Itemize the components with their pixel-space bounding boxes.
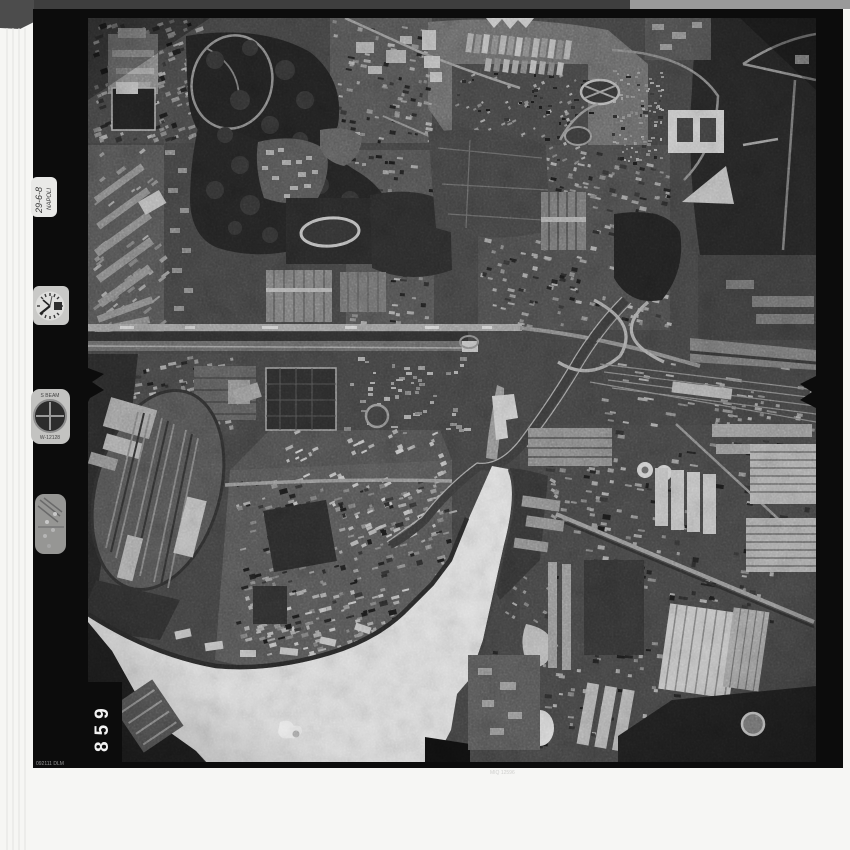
svg-text:092111 DLM: 092111 DLM [36, 761, 64, 767]
svg-text:S BEAM: S BEAM [41, 393, 60, 399]
svg-text:859: 859 [92, 702, 113, 752]
svg-text:29-6-8: 29-6-8 [34, 187, 44, 214]
svg-text:MIQ 12596: MIQ 12596 [490, 770, 515, 776]
svg-text:NAPOLI: NAPOLI [47, 188, 53, 210]
svg-text:W-12128: W-12128 [40, 435, 60, 441]
